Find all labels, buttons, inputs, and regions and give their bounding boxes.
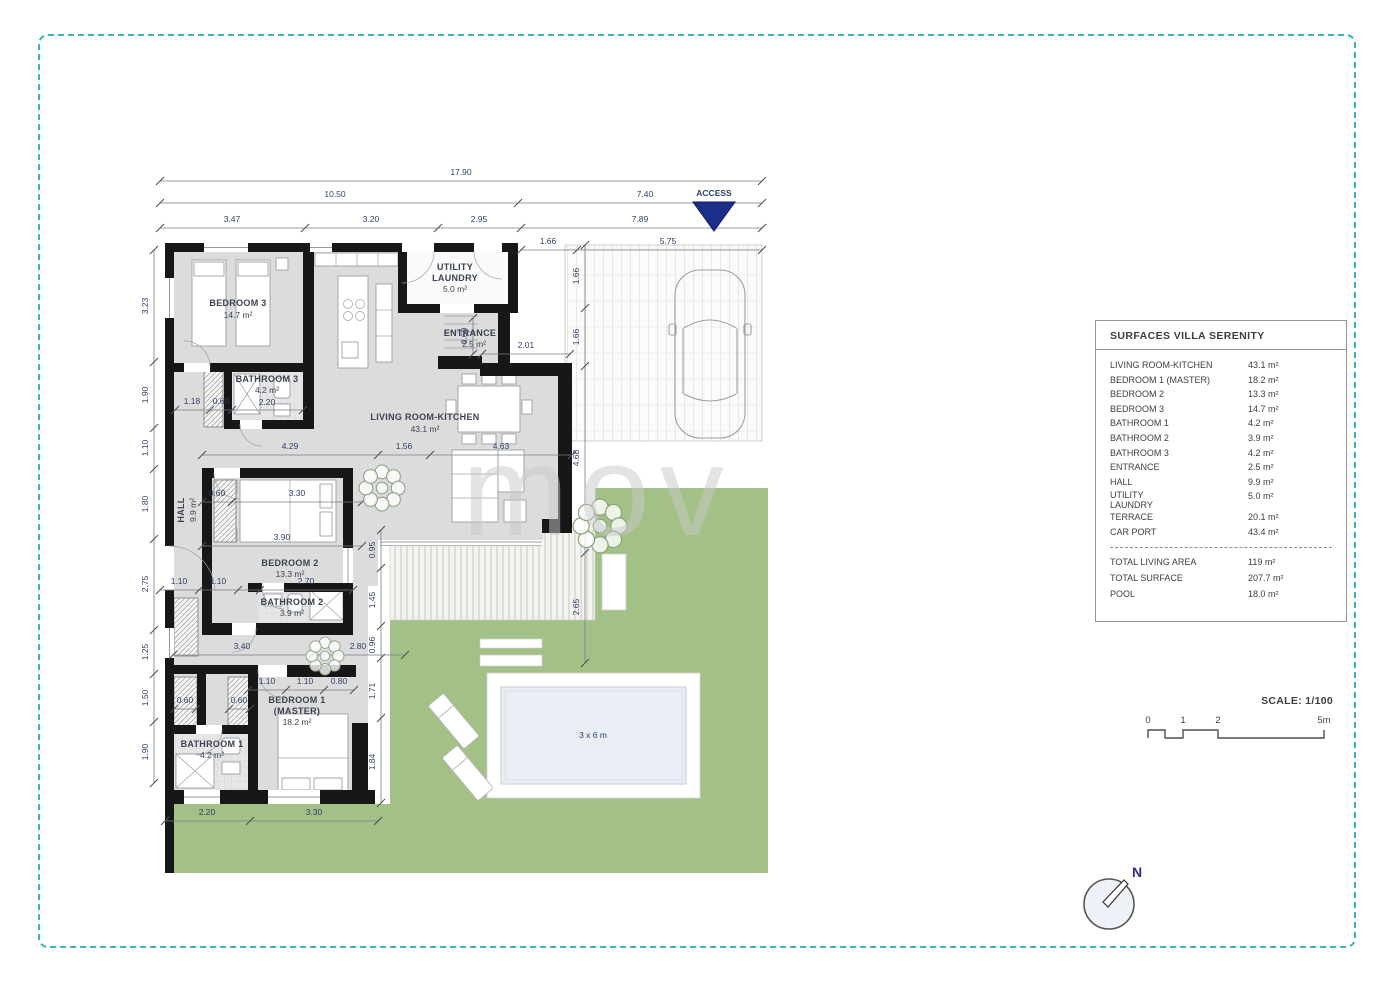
svg-text:4.63: 4.63 [493,441,510,451]
entrance-label: ENTRANCE [444,328,496,338]
svg-text:1.66: 1.66 [571,328,581,345]
svg-text:5.0 m²: 5.0 m² [443,284,467,294]
svg-text:0.96: 0.96 [367,636,377,653]
pool-size-label: 3 x 6 m [579,730,607,740]
svg-text:1.50: 1.50 [140,689,150,706]
svg-text:5m: 5m [1317,715,1330,726]
surfaces-panel: SURFACES VILLA SERENITY LIVING ROOM-KITC… [1095,320,1347,622]
surface-row: BEDROOM 2 13.3 m² [1110,387,1332,402]
total-row: POOL 18.0 m² [1110,586,1332,602]
svg-text:1.10: 1.10 [259,676,276,686]
svg-text:1: 1 [1180,715,1185,726]
svg-text:0.80: 0.80 [331,676,348,686]
bedroom3-label: BEDROOM 3 [209,298,266,308]
svg-text:2.80: 2.80 [350,641,367,651]
svg-text:4.2 m²: 4.2 m² [255,385,279,395]
surface-row: HALL 9.9 m² [1110,475,1332,490]
access-arrow-icon [693,202,735,231]
svg-text:1.10: 1.10 [210,576,227,586]
north-compass: N [1062,850,1162,955]
svg-text:2.20: 2.20 [259,397,276,407]
total-row: TOTAL SURFACE 207.7 m² [1110,570,1332,586]
legend-divider [1110,547,1332,548]
access-marker: ACCESS [693,188,735,231]
bedroom2-label: BEDROOM 2 [261,558,318,568]
svg-text:1.45: 1.45 [367,591,377,608]
svg-text:18.2 m²: 18.2 m² [283,717,312,727]
surface-row: BATHROOM 2 3.9 m² [1110,431,1332,446]
svg-text:2: 2 [1215,715,1220,726]
svg-text:1.84: 1.84 [367,753,377,770]
svg-text:2.01: 2.01 [518,340,535,350]
svg-text:10.50: 10.50 [324,189,346,199]
svg-text:3.20: 3.20 [363,214,380,224]
svg-text:1.90: 1.90 [140,386,150,403]
access-label: ACCESS [696,188,732,198]
svg-text:3.47: 3.47 [224,214,241,224]
svg-text:1.66: 1.66 [540,236,557,246]
scale-title: SCALE: 1/100 [1140,695,1335,707]
svg-text:13.3 m²: 13.3 m² [276,569,305,579]
bedroom1-label: BEDROOM 1 [268,695,325,705]
bathroom1-label: BATHROOM 1 [181,739,244,749]
surface-row: ENTRANCE 2.5 m² [1110,460,1332,475]
scale-bar: 0 1 2 5m [1140,707,1335,747]
pool: 3 x 6 m [487,673,700,798]
svg-text:7.40: 7.40 [637,189,654,199]
svg-text:1.18: 1.18 [184,396,201,406]
svg-text:4.68: 4.68 [571,449,581,466]
total-row: TOTAL LIVING AREA 119 m² [1110,554,1332,570]
floor-plan: 3 x 6 m [140,158,785,893]
surface-row: UTILITY LAUNDRY 5.0 m² [1110,489,1332,510]
hall-label: HALL [176,497,186,522]
svg-text:17.90: 17.90 [450,167,472,177]
svg-text:1.90: 1.90 [140,743,150,760]
svg-text:1.56: 1.56 [396,441,413,451]
utility-label: UTILITY [437,262,473,272]
surface-row: BEDROOM 1 (MASTER) 18.2 m² [1110,373,1332,388]
surface-row: BEDROOM 3 14.7 m² [1110,402,1332,417]
north-label: N [1132,864,1142,880]
svg-text:0: 0 [1145,715,1150,726]
carport [565,245,762,441]
sunbed [602,554,626,610]
surface-row: TERRACE 20.1 m² [1110,510,1332,525]
surface-row: LIVING ROOM-KITCHEN 43.1 m² [1110,358,1332,373]
svg-text:3.23: 3.23 [140,297,150,314]
svg-text:3.40: 3.40 [234,641,251,651]
svg-text:1.10: 1.10 [297,676,314,686]
svg-text:4.29: 4.29 [282,441,299,451]
svg-text:14.7 m²: 14.7 m² [224,310,253,320]
surface-row: BATHROOM 3 4.2 m² [1110,446,1332,461]
svg-text:0.60: 0.60 [177,695,194,705]
svg-text:(MASTER): (MASTER) [274,706,320,716]
svg-text:7.89: 7.89 [632,214,649,224]
living-label: LIVING ROOM-KITCHEN [370,412,479,422]
scale-indicator: SCALE: 1/100 0 1 2 5m [1140,695,1335,752]
svg-text:2.5 m²: 2.5 m² [462,339,486,349]
svg-text:2.20: 2.20 [199,807,216,817]
svg-text:2.95: 2.95 [471,214,488,224]
svg-text:0.60: 0.60 [209,488,226,498]
bathroom3-label: BATHROOM 3 [236,374,299,384]
svg-text:3.90: 3.90 [274,532,291,542]
svg-text:5.75: 5.75 [660,236,677,246]
surface-row: CAR PORT 43.4 m² [1110,525,1332,540]
svg-text:LAUNDRY: LAUNDRY [432,273,478,283]
svg-text:9.9 m²: 9.9 m² [188,498,198,522]
svg-text:1.66: 1.66 [571,267,581,284]
svg-text:3.30: 3.30 [306,807,323,817]
svg-text:4.2 m²: 4.2 m² [200,750,224,760]
svg-text:1.71: 1.71 [367,682,377,699]
tree-icon [573,499,627,553]
tree-icon [359,465,405,511]
surfaces-panel-title: SURFACES VILLA SERENITY [1096,321,1346,350]
bathroom2-label: BATHROOM 2 [261,597,324,607]
svg-text:1.10: 1.10 [171,576,188,586]
svg-text:43.1 m²: 43.1 m² [411,424,440,434]
svg-text:3.30: 3.30 [289,488,306,498]
svg-text:1.25: 1.25 [140,643,150,660]
svg-text:1.10: 1.10 [140,439,150,456]
svg-text:0.95: 0.95 [367,541,377,558]
svg-text:2.65: 2.65 [571,598,581,615]
svg-text:0.60: 0.60 [231,695,248,705]
tree-icon [306,637,344,675]
svg-text:3.9 m²: 3.9 m² [280,608,304,618]
surface-row: BATHROOM 1 4.2 m² [1110,416,1332,431]
svg-text:0.60: 0.60 [213,396,230,406]
svg-text:1.80: 1.80 [140,495,150,512]
svg-text:2.75: 2.75 [140,575,150,592]
